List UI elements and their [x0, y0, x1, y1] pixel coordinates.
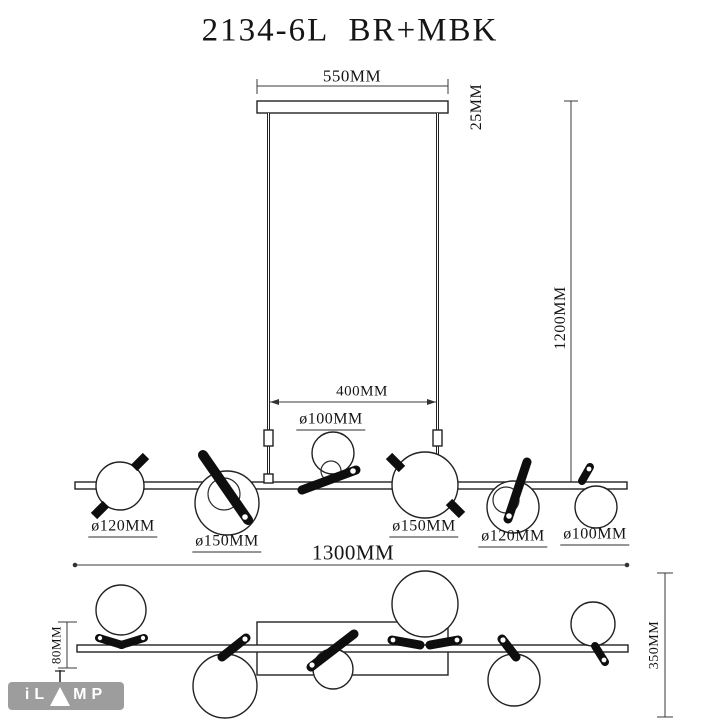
brand-text-right: MP [73, 686, 107, 704]
rod-fitting-right [433, 430, 442, 446]
dim-1300-label: 1300MM [312, 543, 394, 564]
side-view [73, 79, 630, 567]
plan-sphere-f [571, 602, 615, 662]
plan-view [55, 571, 673, 718]
shade-sphere-120-right [487, 462, 539, 533]
shade-150-left-label: ø150MM [192, 534, 261, 553]
model-title: 2134-6L BR+MBK [202, 15, 499, 48]
shade-150-right-label: ø150MM [389, 519, 458, 538]
shade-120-left-label: ø120MM [88, 519, 157, 538]
shade-100-right-label: ø100MM [560, 527, 629, 546]
dim-550-label: 550MM [323, 68, 381, 85]
shade-sphere-120-left [94, 456, 146, 516]
fixture-bar-plan [77, 645, 628, 652]
dim-350-label: 350MM [648, 621, 662, 669]
brand-logo: iL MP [8, 682, 124, 710]
shade-sphere-150-left [195, 455, 259, 535]
lamp-triangle-icon [50, 687, 70, 706]
shade-120-right-label: ø120MM [478, 529, 547, 548]
fixture-bar [75, 482, 627, 489]
rod-fitting-left [264, 430, 273, 446]
dim-1200-label: 1200MM [553, 286, 569, 349]
shade-100-top-label: ø100MM [296, 412, 365, 431]
dim-400-lines [270, 399, 436, 405]
plan-sphere-a [96, 585, 146, 645]
dim-25-label: 25MM [469, 84, 485, 130]
brand-text-left: iL [25, 686, 49, 704]
dim-80-label: 80MM [50, 626, 63, 664]
rod-foot-left [264, 474, 273, 483]
dim-400-label: 400MM [336, 385, 388, 400]
shade-sphere-100-right [575, 467, 617, 528]
ceiling-plate [257, 101, 448, 113]
shade-sphere-150-right [389, 452, 462, 518]
shade-sphere-100-top [302, 432, 356, 490]
diagram-canvas: 2134-6L BR+MBK 550MM 25MM 1200MM 400MM ø… [0, 0, 720, 720]
technical-drawing [0, 0, 720, 720]
